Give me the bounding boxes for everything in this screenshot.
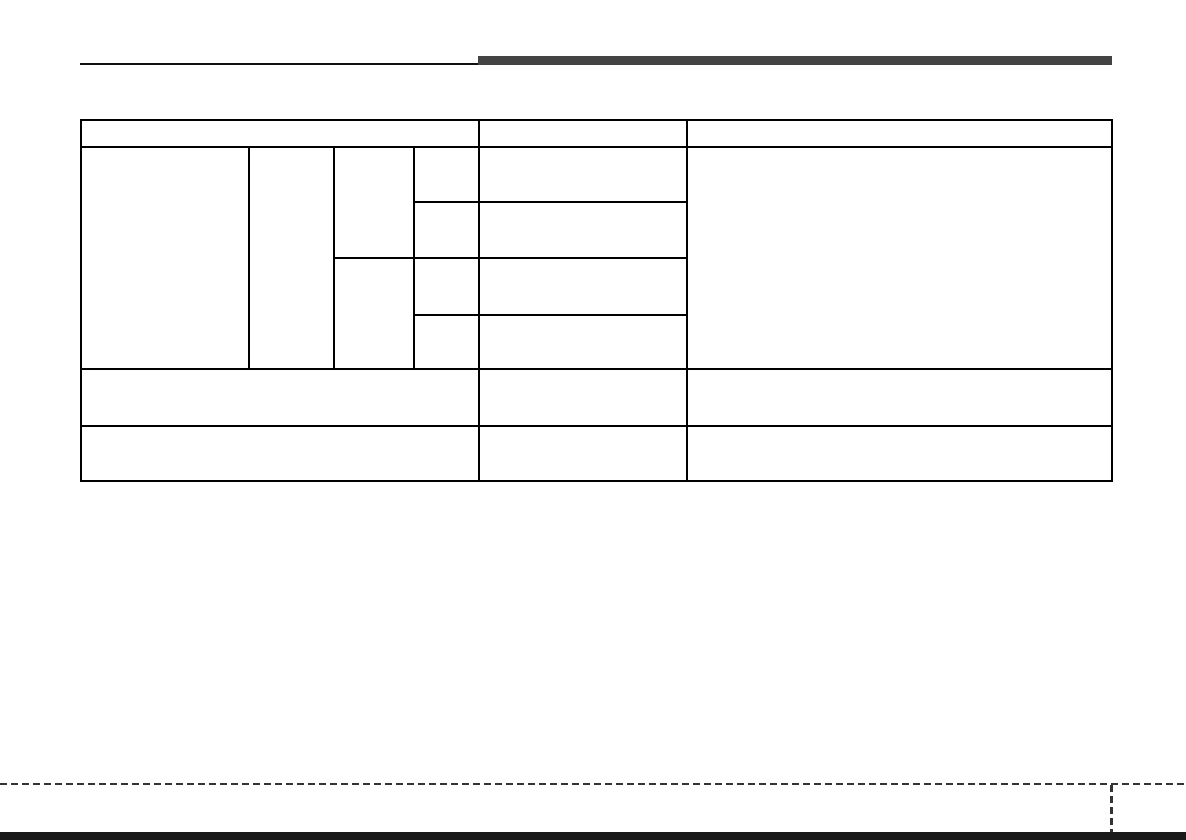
table-row-3 bbox=[81, 426, 1112, 481]
main-row-col5-cell-1 bbox=[479, 147, 687, 202]
row3-cell-left bbox=[81, 426, 479, 481]
main-row-col5-cell-3 bbox=[479, 258, 687, 315]
footer-dashed-rule bbox=[0, 783, 1186, 785]
header-rule-accent-bar bbox=[478, 56, 1112, 65]
row3-cell-middle bbox=[479, 426, 687, 481]
row3-cell-right bbox=[687, 426, 1112, 481]
main-row-col4-cell-1 bbox=[414, 147, 479, 202]
row2-cell-right bbox=[687, 369, 1112, 426]
main-row-col4-cell-3 bbox=[414, 258, 479, 315]
main-row-col4-cell-2 bbox=[414, 202, 479, 258]
main-row-col2-cell bbox=[249, 147, 334, 369]
header-cell-middle bbox=[479, 120, 687, 147]
header-cell-left bbox=[81, 120, 479, 147]
header-cell-right bbox=[687, 120, 1112, 147]
header-rule-thin-line bbox=[80, 63, 478, 65]
page-bottom-edge bbox=[0, 832, 1186, 840]
main-row-col1-cell bbox=[81, 147, 249, 369]
main-row-col3-lower-cell bbox=[334, 258, 414, 369]
manual-page bbox=[0, 0, 1186, 840]
main-row-sub-1 bbox=[81, 147, 1112, 202]
main-row-col6-cell bbox=[687, 147, 1112, 369]
main-row-col5-cell-2 bbox=[479, 202, 687, 258]
row2-cell-left bbox=[81, 369, 479, 426]
spec-table bbox=[80, 119, 1113, 482]
table-row-2 bbox=[81, 369, 1112, 426]
main-row-col5-cell-4 bbox=[479, 315, 687, 369]
table-header-row bbox=[81, 120, 1112, 147]
footer-corner-dashed-rule bbox=[1110, 785, 1113, 832]
row2-cell-middle bbox=[479, 369, 687, 426]
main-row-col3-upper-cell bbox=[334, 147, 414, 258]
main-row-col4-cell-4 bbox=[414, 315, 479, 369]
